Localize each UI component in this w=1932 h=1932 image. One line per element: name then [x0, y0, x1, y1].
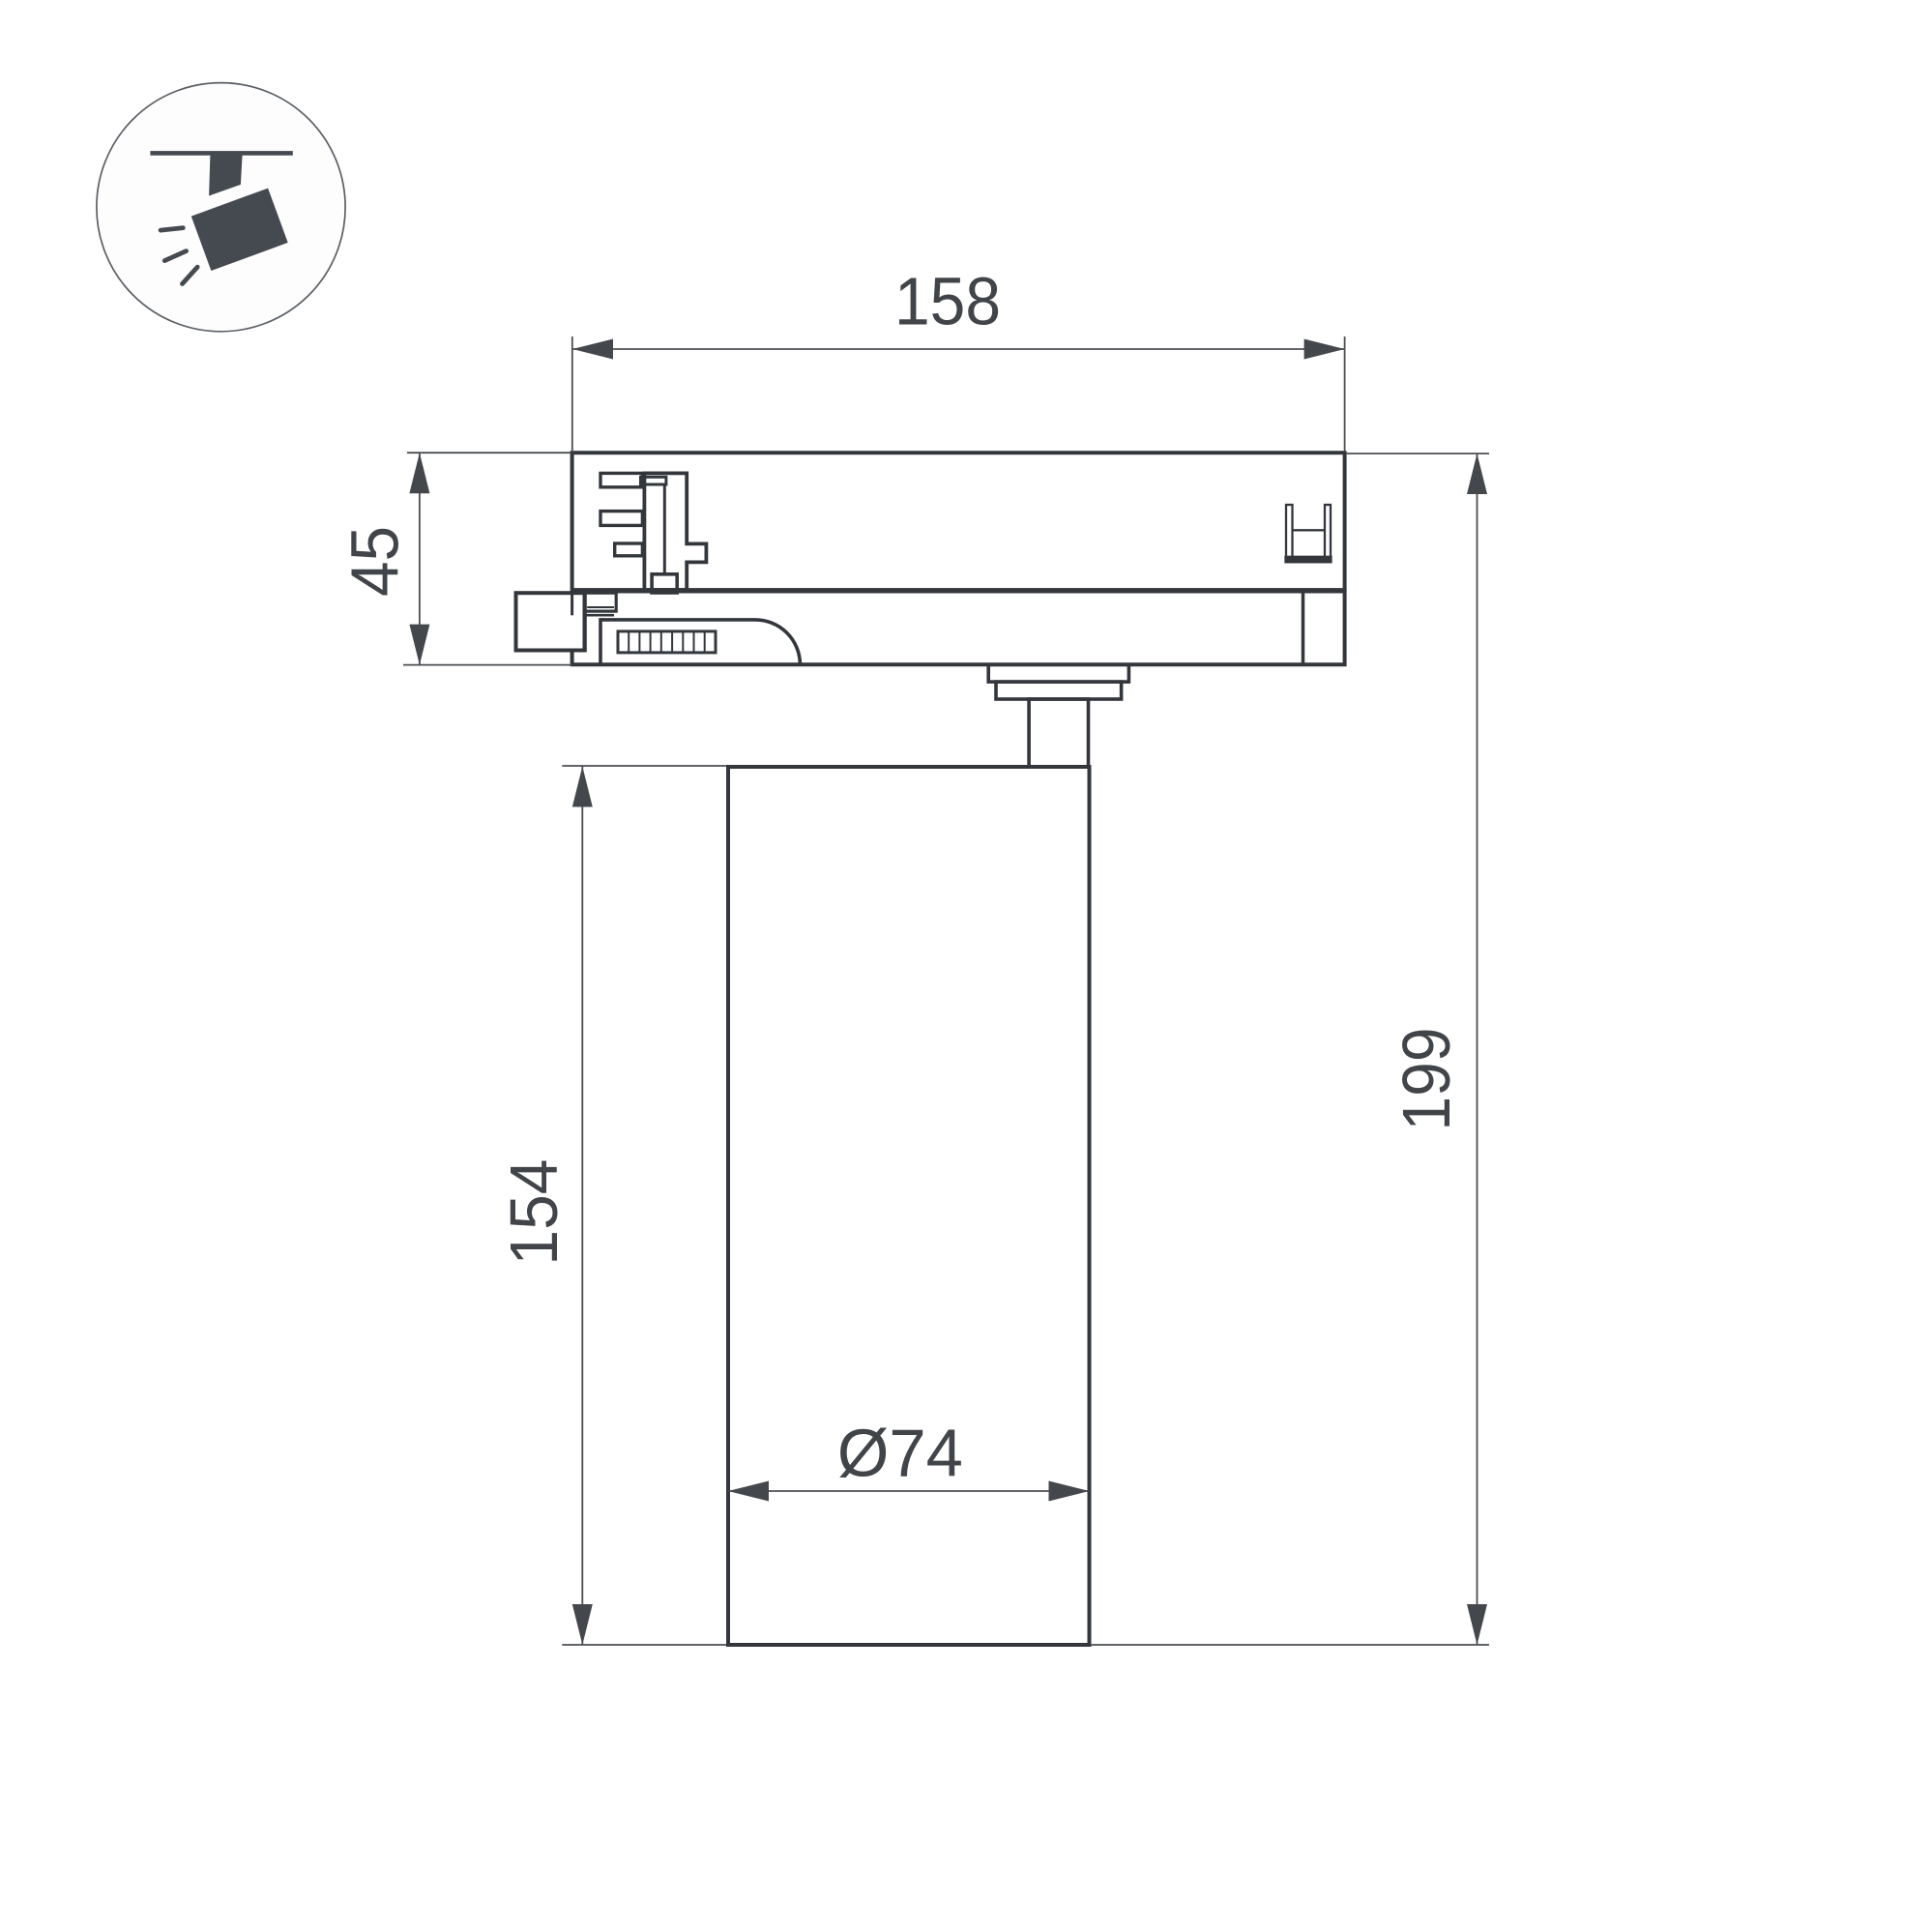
svg-text:158: 158 [894, 264, 1001, 339]
svg-text:45: 45 [337, 526, 413, 597]
svg-text:199: 199 [1389, 1028, 1464, 1131]
svg-text:154: 154 [496, 1159, 571, 1266]
svg-text:Ø74: Ø74 [837, 1416, 963, 1491]
